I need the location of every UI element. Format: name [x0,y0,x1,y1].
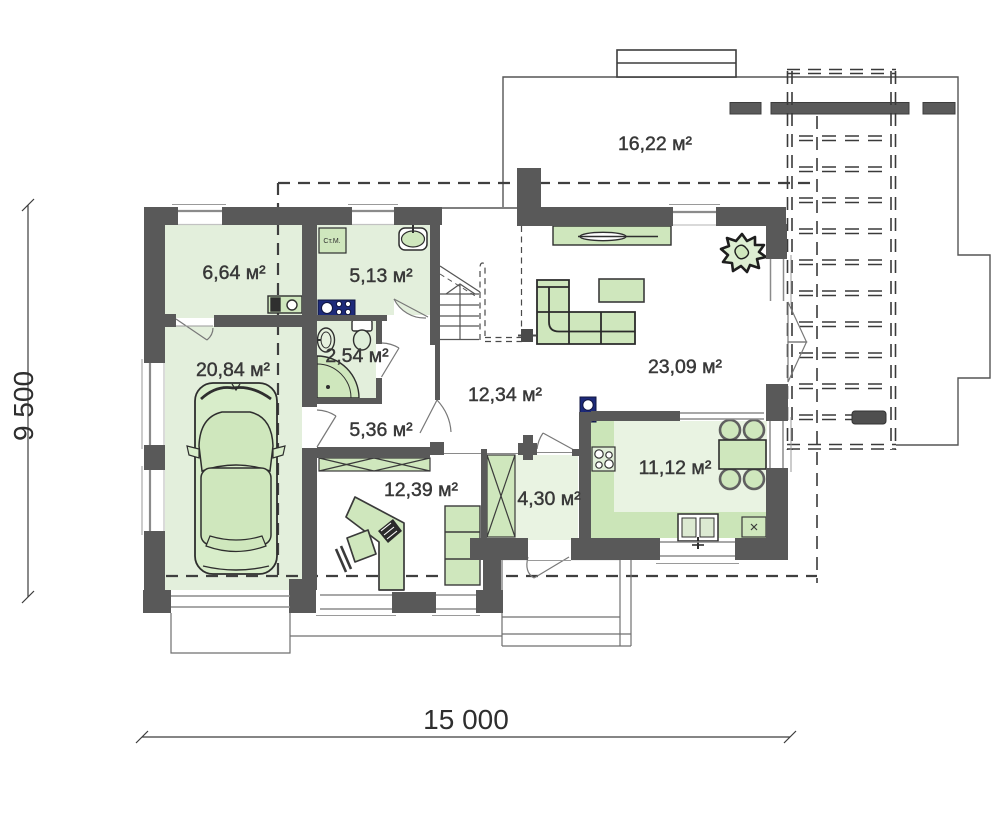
svg-text:Ст.М.: Ст.М. [323,238,340,245]
svg-text:23,09 м²: 23,09 м² [648,356,723,378]
svg-text:12,39 м²: 12,39 м² [384,479,459,501]
svg-text:6,64 м²: 6,64 м² [202,262,266,284]
svg-text:11,12 м²: 11,12 м² [639,457,712,479]
svg-text:4,30 м²: 4,30 м² [517,488,581,510]
svg-text:12,34 м²: 12,34 м² [468,384,543,406]
svg-text:2,54 м²: 2,54 м² [325,345,389,367]
svg-text:20,84 м²: 20,84 м² [196,359,271,381]
svg-text:5,36 м²: 5,36 м² [349,419,413,441]
svg-text:15 000: 15 000 [423,704,509,735]
svg-text:5,13 м²: 5,13 м² [349,265,413,287]
svg-text:9 500: 9 500 [8,371,39,441]
svg-text:16,22 м²: 16,22 м² [618,133,693,155]
